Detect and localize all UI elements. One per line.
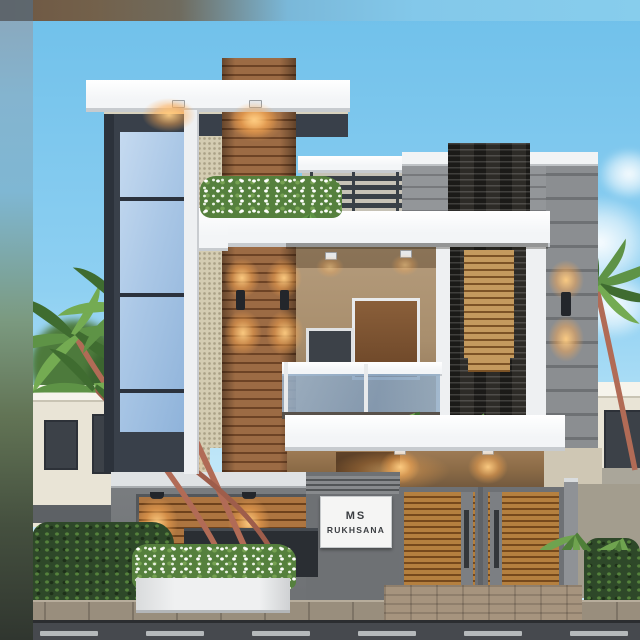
blur-border-top [0,0,640,21]
driveway-apron [384,585,582,622]
downlight-glow [468,450,508,484]
white-trim-right [526,244,548,420]
cloud [598,148,640,200]
gate-handle [464,510,469,568]
sconce-glow-down [548,316,584,362]
gate-handle-stile [490,492,502,586]
curtain-wall-glass [120,132,184,432]
wall-sconce [561,292,571,316]
terrace-rail-post [352,172,355,216]
white-planter-box [136,578,290,613]
lane-marking [570,631,628,636]
lane-marking [464,631,522,636]
plaque-line1: MS [346,510,367,522]
house-elevation-render: MS RUKHSANA [0,0,640,640]
terrace-plant-tuft [280,146,340,218]
balcony-plants [355,308,525,420]
gate-handle [494,510,499,568]
lane-marking [252,631,310,636]
column-coping [546,152,598,166]
slab-shadow [286,243,548,249]
downlight-glow [391,254,419,276]
downlight-glow [230,102,278,138]
sign-wall-grooves [306,476,400,494]
ground-floor-slab [285,415,565,451]
stone-cladding-top [448,143,530,217]
tower-white-trim [184,110,199,474]
blur-border-corner [0,0,33,21]
lane-marking [146,631,204,636]
lane-marking [358,631,416,636]
road [0,620,640,640]
gate-handle-stile [461,492,473,586]
plaque-line2: RUKHSANA [327,525,385,535]
fern-plants-right [540,410,640,550]
roof-slab [86,80,350,112]
gate-left [399,487,480,591]
downlight-glow [316,256,344,278]
fern-cluster [540,528,640,550]
blur-border-left [0,0,33,640]
terrace-rail-post [396,172,399,216]
tower-top-light [142,98,196,132]
lane-marking [40,631,98,636]
name-plaque: MS RUKHSANA [320,496,392,548]
